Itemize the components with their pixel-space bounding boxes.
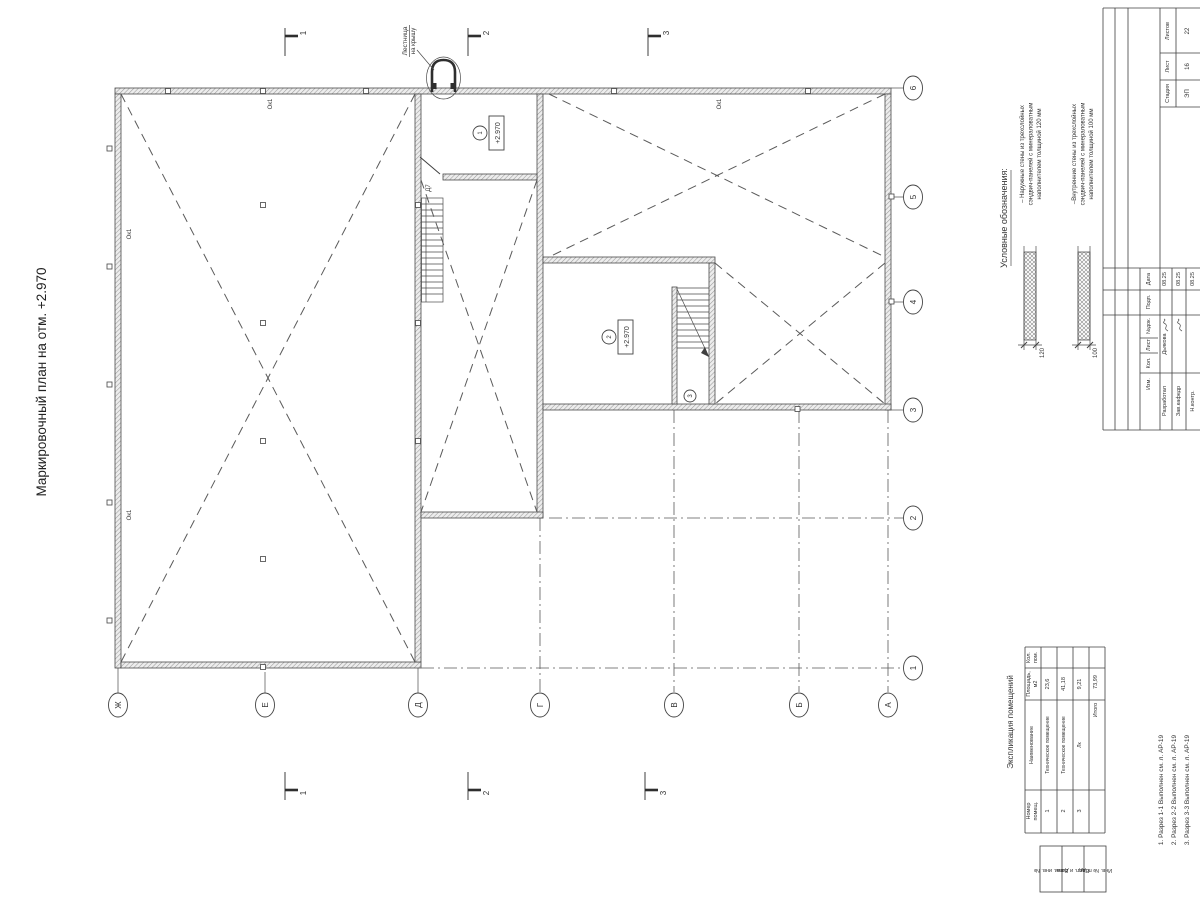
legend-item-text: сэндвич-панелей с минераловатным (1028, 103, 1035, 206)
legend-dim: 120 (1040, 347, 1046, 358)
roof-ladder-label: Лестница на крышу (402, 25, 417, 57)
section-mark-label: 3 (659, 790, 668, 795)
stamp-row: Разработал Дьякова 08.25 (1162, 272, 1168, 416)
total-label: Итого (1093, 703, 1099, 717)
roof-ladder-label-line2: на крышу (411, 28, 417, 54)
section-mark-label: 2 (482, 790, 491, 795)
cell-name: Техническое помещение (1061, 716, 1067, 774)
section-mark-label: 1 (299, 790, 308, 795)
axis-number: 3 (909, 407, 918, 412)
role: Разработал (1162, 386, 1168, 416)
axis-letter: Б (795, 702, 804, 707)
rev-header: Подп. (1146, 294, 1152, 309)
explication-table: Экспликация помещений Кол. пом. Площадь,… (1006, 647, 1105, 833)
col-header: помещ. (1033, 801, 1039, 820)
title-block: Стадия ЭП Лист 16 Листов 22 Дата Подп. №… (1103, 8, 1200, 430)
legend-item-text: – Наружные стены из трехслойных (1019, 105, 1026, 203)
side-attribute-boxes: Взам. инв. № Подп. и дата Инв. № подл. (1034, 846, 1112, 892)
cell-name: Лк (1077, 741, 1083, 747)
cell-number: 1 (1045, 809, 1051, 812)
table-total-row: Итого 73,99 (1093, 675, 1099, 717)
cell-area: 9,21 (1077, 679, 1083, 690)
legend: Условные обозначения: – Наружные стены и… (999, 103, 1099, 358)
col-header: Наименование (1029, 726, 1035, 764)
col-header: м2 (1033, 681, 1039, 688)
rev-header: Дата (1146, 272, 1152, 285)
stamp-row: Зав.кафедр 08.25 (1176, 272, 1182, 416)
col-header: пом. (1033, 651, 1039, 663)
cell-name: Техническое помещение (1045, 716, 1051, 774)
axis-number: 4 (909, 299, 918, 304)
cell-number: 2 (1061, 809, 1067, 812)
date: 08.25 (1176, 272, 1182, 286)
axis-bubbles-numbers: 6 5 4 3 2 1 (904, 76, 923, 680)
window-label: Ок1 (127, 228, 133, 239)
side-column-label: Инв. № подл. (1077, 867, 1112, 873)
floor-plan-canvas: Маркировочный план на отм. +2.970 (0, 0, 1200, 900)
note-line: 3. Разрез 3-3 Выполнен см. л. АР-19 (1184, 735, 1191, 846)
cell-number: 3 (1077, 809, 1083, 812)
date: 08.25 (1190, 272, 1196, 286)
legend-title: Условные обозначения: (999, 168, 1009, 268)
explication-title: Экспликация помещений (1006, 675, 1015, 769)
legend-item-text: наполнителем толщиной 100 мм (1088, 109, 1095, 200)
sheet-label: Лист (1165, 60, 1171, 72)
role: Зав.кафедр (1176, 386, 1182, 416)
page-title: Маркировочный план на отм. +2.970 (34, 267, 49, 496)
axis-letter: Ж (114, 701, 123, 709)
window-label: Ок1 (268, 98, 274, 109)
legend-item-text: –Внутренние стены из трехслойных (1071, 104, 1078, 204)
section-mark-label: 2 (482, 30, 491, 35)
door-leaf (420, 157, 440, 174)
col-header: Кол. (1026, 652, 1032, 663)
stamp-row: Н.контр. 08.25 (1190, 272, 1196, 411)
window-label: Ок1 (717, 98, 723, 109)
col-header: Площадь, (1026, 671, 1032, 697)
note-line: 1. Разрез 1-1 Выполнен см. л. АР-19 (1158, 735, 1165, 846)
stair-flight-secondary (677, 288, 709, 357)
sheets-value: 22 (1185, 27, 1191, 34)
rev-header: Кол. (1146, 357, 1152, 368)
date: 08.25 (1162, 272, 1168, 286)
walls (115, 88, 891, 668)
table-row: 3 Лк 9,21 (1077, 679, 1083, 813)
axis-letter: Г (536, 702, 545, 707)
table-row: 2 Техническое помещение 41,18 (1061, 677, 1067, 812)
role: Н.контр. (1190, 390, 1196, 412)
axis-number: 5 (909, 194, 918, 199)
col-header: Номер (1026, 803, 1032, 820)
section-marks-top: 1 2 3 (285, 28, 671, 56)
section-mark-label: 1 (299, 30, 308, 35)
stage-value: ЭП (1185, 89, 1191, 98)
cell-area: 41,18 (1061, 677, 1067, 691)
room-elevation: +2.970 (495, 122, 502, 144)
rev-header: Лист (1146, 339, 1152, 351)
legend-item-text: сэндвич-панелей с минераловатным (1080, 103, 1087, 206)
rev-header: Изм. (1146, 378, 1152, 390)
total-value: 73,99 (1093, 675, 1099, 689)
section-mark-label: 3 (662, 30, 671, 35)
drawing-sheet: Маркировочный план на отм. +2.970 (0, 0, 1200, 900)
sheet-value: 16 (1185, 63, 1191, 70)
roof-ladder-label-line1: Лестница (402, 26, 409, 55)
table-row: 1 Техническое помещение 23,6 (1045, 679, 1051, 813)
notes: 1. Разрез 1-1 Выполнен см. л. АР-19 2. Р… (1158, 735, 1191, 846)
window-label: Ок1 (127, 509, 133, 520)
room-elevation: +2.970 (624, 326, 631, 348)
legend-item-text: наполнителем толщиной 120 мм (1036, 109, 1043, 200)
axis-number: 6 (909, 85, 918, 90)
stage-label: Стадия (1165, 84, 1171, 103)
rev-header: №док. (1146, 317, 1152, 334)
axis-number: 2 (909, 515, 918, 520)
axis-number: 1 (909, 665, 918, 670)
legend-dim: 100 (1093, 347, 1099, 358)
axis-letter: А (884, 702, 893, 708)
axis-letter: Е (261, 702, 270, 707)
note-line: 2. Разрез 2-2 Выполнен см. л. АР-19 (1171, 735, 1178, 846)
axis-letter: Д (414, 702, 423, 708)
name: Дьякова (1162, 333, 1168, 355)
axis-letter: В (670, 702, 679, 707)
door-label: Д7 (426, 184, 432, 192)
axis-bubbles-letters: Ж Е Д Г В Б А (109, 693, 898, 717)
section-marks-bottom: 1 2 3 (285, 772, 668, 800)
sheets-label: Листов (1165, 22, 1171, 40)
cell-area: 23,6 (1045, 679, 1051, 690)
